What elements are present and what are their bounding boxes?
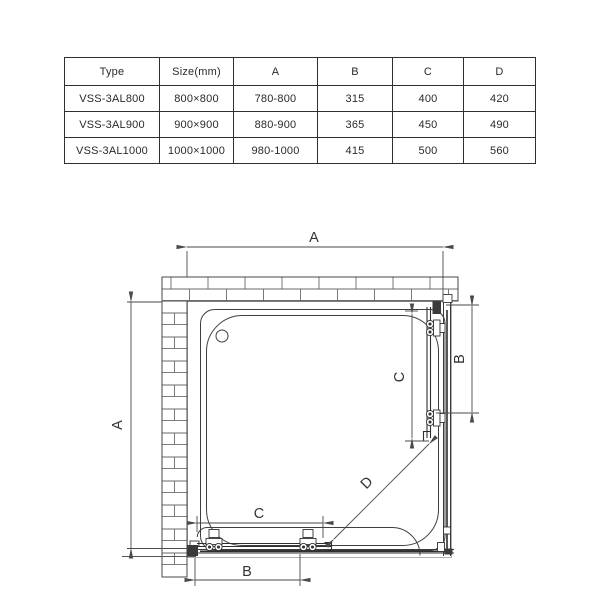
top-wall-brick [162,277,458,301]
dimension-d-diagonal [334,444,429,539]
dim-label-b-bottom: B [242,564,252,580]
drain-icon [216,330,228,342]
right-door-roller [426,410,445,426]
dim-label-d-diagonal: D [358,474,377,493]
right-wall-profile [433,301,442,314]
technical-drawing: A A B C C B D [0,0,600,600]
dim-label-c-bottom: C [254,506,264,522]
dim-label-c-right: C [392,372,408,382]
dimension-c-right [405,311,429,441]
spec-sheet-page: Type Size(mm) A B C D VSS-3AL800 800×800… [0,0,600,600]
dim-label-b-right: B [452,354,468,364]
left-wall-brick [162,301,187,577]
dim-label-a-left: A [110,420,126,430]
bottom-door-roller [206,530,222,551]
bottom-door-roller [300,530,316,551]
shower-tray [197,310,445,556]
right-fixed-panel [443,295,452,557]
dim-label-a-top: A [309,230,319,246]
